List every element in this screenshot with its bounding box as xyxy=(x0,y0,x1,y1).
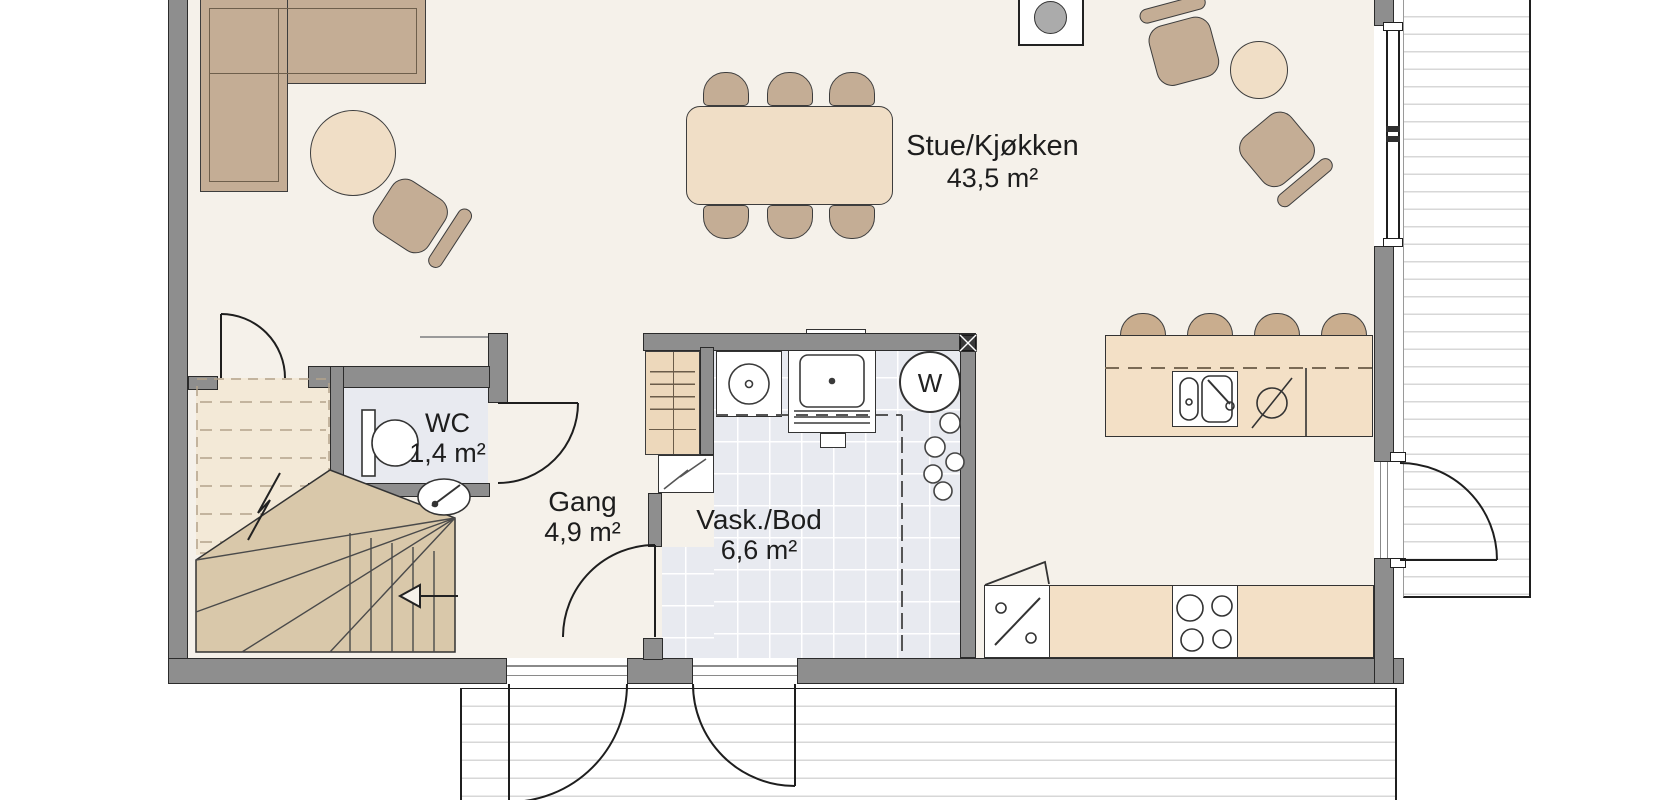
washing-machine-label: W xyxy=(899,368,961,399)
exterior-wall-bottom-right xyxy=(797,658,1404,684)
wc-door-pier xyxy=(488,333,508,403)
closet-shelf-line xyxy=(649,429,696,430)
window-mullion-2 xyxy=(1386,136,1400,142)
fireplace-stove-icon xyxy=(1034,1,1067,34)
laundry-sink xyxy=(788,345,876,433)
window-mullion-1 xyxy=(1386,126,1400,132)
stair-upper-flight xyxy=(196,378,330,555)
right-terrace-deck xyxy=(1403,0,1531,598)
interior-wall-laundry-right xyxy=(960,333,976,658)
terrace-door-jamb-bottom xyxy=(1390,558,1406,568)
dining-table xyxy=(686,106,893,205)
side-table xyxy=(1230,41,1288,99)
stair-door-stub xyxy=(188,376,218,390)
terrace-door-threshold xyxy=(1374,462,1394,558)
room-area: 1,4 m² xyxy=(395,438,500,468)
sofa-seat-line-2 xyxy=(209,8,279,182)
dining-chair-top-2 xyxy=(767,72,813,106)
interior-wall-laundry-left xyxy=(700,347,714,455)
closet-divider xyxy=(673,352,674,454)
door-pier-stub xyxy=(643,638,663,660)
dining-chair-top-1 xyxy=(703,72,749,106)
kitchen-island xyxy=(1105,335,1373,437)
laundry-door-threshold xyxy=(693,658,797,684)
interior-wall-laundry-top xyxy=(643,333,976,351)
bottom-terrace-deck xyxy=(460,688,1397,800)
dryer xyxy=(716,351,782,417)
exterior-wall-left xyxy=(168,0,188,684)
window-jamb-top xyxy=(1383,22,1403,31)
room-label-gang: Gang 4,9 m² xyxy=(520,486,645,547)
coffee-table xyxy=(310,110,396,196)
exterior-wall-right-mid xyxy=(1374,246,1394,462)
dining-chair-top-3 xyxy=(829,72,875,106)
room-area: 43,5 m² xyxy=(880,163,1105,193)
cooktop xyxy=(1172,585,1238,658)
room-name: Vask./Bod xyxy=(680,504,838,535)
room-name: WC xyxy=(395,408,500,438)
room-area: 4,9 m² xyxy=(520,517,645,547)
wc-wall-left xyxy=(330,366,344,497)
laundry-sink-drain xyxy=(820,433,846,448)
room-name: Gang xyxy=(520,486,645,517)
kitchen-sink xyxy=(1172,371,1238,427)
room-name: Stue/Kjøkken xyxy=(880,130,1105,163)
room-label-stue: Stue/Kjøkken 43,5 m² xyxy=(880,130,1105,193)
pass-through-opening xyxy=(658,455,714,493)
floor-plan: W xyxy=(0,0,1670,800)
armchair-2-seat xyxy=(1145,13,1223,89)
wc-wall-bottom xyxy=(308,483,490,497)
fridge xyxy=(984,585,1050,658)
interior-wall-laundry-door-stub xyxy=(648,493,662,547)
exterior-wall-right-bottom xyxy=(1374,558,1394,684)
hall-closet xyxy=(645,351,700,455)
terrace-door-jamb-top xyxy=(1390,452,1406,462)
window-right xyxy=(1386,24,1400,246)
window-jamb-bottom xyxy=(1383,238,1403,247)
exterior-wall-bottom-left xyxy=(168,658,507,684)
room-label-vask: Vask./Bod 6,6 m² xyxy=(680,504,838,565)
room-label-wc: WC 1,4 m² xyxy=(395,408,500,468)
room-area: 6,6 m² xyxy=(680,535,838,565)
exterior-wall-bottom-pier xyxy=(627,658,693,684)
entrance-door-threshold xyxy=(507,658,627,684)
